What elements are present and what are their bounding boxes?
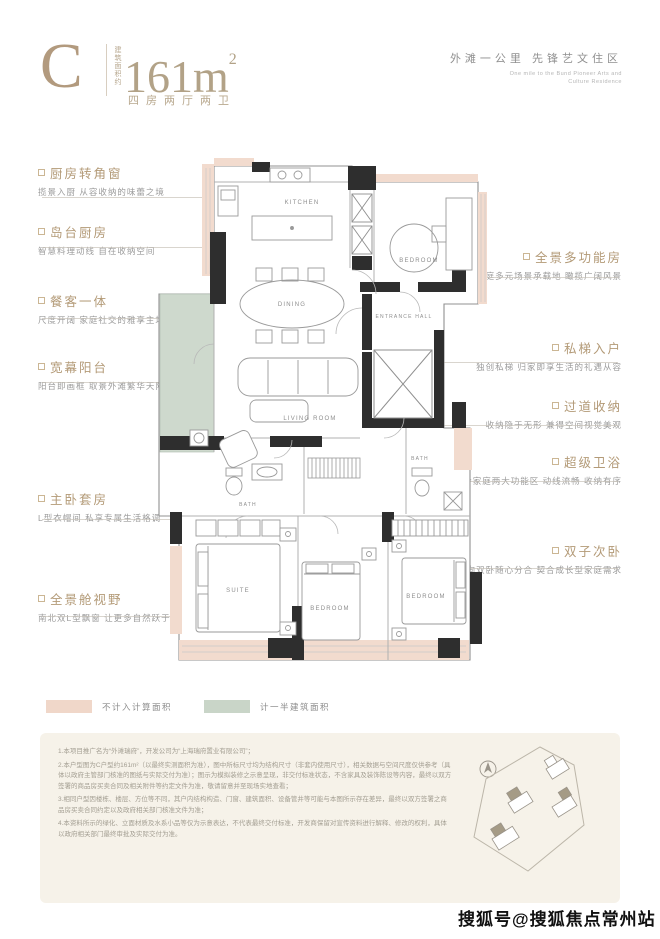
annotation-title: 厨房转角窗 (50, 167, 123, 181)
slogan-en-line1: One mile to the Bund Pioneer Arts and (510, 71, 622, 77)
annotation-title: 双子次卧 (564, 545, 622, 559)
legend-item-pink: 不计入计算面积 (46, 700, 172, 713)
annotation-title: 私梯入户 (564, 342, 622, 356)
room-label-bedroom-right: BEDROOM (406, 594, 445, 600)
annotation-title: 过道收纳 (564, 400, 622, 414)
slogan-en: One mile to the Bund Pioneer Arts and Cu… (322, 70, 622, 86)
slogan-cn: 外滩一公里 先锋艺文住区 (322, 50, 622, 66)
room-label-multi-room: BEDROOM (399, 258, 438, 264)
bullet-icon (38, 495, 45, 502)
half-counted-area-green (160, 294, 214, 452)
annotation-desc: L型衣帽间 私享专属生活格调 (38, 512, 161, 524)
site-minimap (462, 741, 612, 881)
annotation-title: 超级卫浴 (564, 456, 622, 470)
annotation-title: 岛台厨房 (50, 226, 108, 240)
floorplan-drawing: KITCHEN DINING LIVING ROOM BEDROOM ENTRA… (152, 148, 492, 683)
annotation-title: 主卧套房 (50, 493, 108, 507)
annotation-island-kitchen: 岛台厨房 智慧料理动线 自在收纳空间 (38, 222, 155, 257)
bullet-icon (38, 169, 45, 176)
watermark: 搜狐号@搜狐焦点常州站 (458, 905, 656, 930)
annotation-balcony: 宽幕阳台 阳台即画框 取景外滩繁华天际 (38, 357, 165, 392)
room-label-bath-second: BATH (411, 456, 429, 462)
header-divider (106, 44, 107, 96)
annotation-dining-living: 餐客一体 尺度开阔 家庭社交的雅享主场 (38, 291, 165, 326)
slogan-en-line2: Culture Residence (568, 79, 622, 85)
room-label-bedroom-mid: BEDROOM (310, 606, 349, 612)
bullet-icon (552, 547, 559, 554)
legend: 不计入计算面积 计一半建筑面积 (46, 700, 348, 713)
disclaimer-text: 1.本项目推广名为“外滩瑞府”，开发公司为“上海瑞府置业有限公司”； 2.本户型… (58, 747, 452, 843)
annotation-desc: 尺度开阔 家庭社交的雅享主场 (38, 314, 165, 326)
disclaimer-line: 1.本项目推广名为“外滩瑞府”，开发公司为“上海瑞府置业有限公司”； (58, 747, 452, 758)
storage-hatch (308, 458, 360, 478)
private-elevator (374, 350, 432, 418)
legend-swatch-pink (46, 700, 92, 713)
bullet-icon (552, 402, 559, 409)
annotation-title: 全景舱视野 (50, 593, 123, 607)
bullet-icon (552, 458, 559, 465)
room-label-kitchen: KITCHEN (285, 200, 320, 206)
annotation-title: 全景多功能房 (535, 251, 622, 265)
bullet-icon (523, 253, 530, 260)
legend-label: 计一半建筑面积 (260, 701, 330, 713)
balcony-fixtures (190, 430, 208, 446)
room-label-bath-main: BATH (239, 502, 257, 508)
legend-item-green: 计一半建筑面积 (204, 700, 330, 713)
area-note: 建筑面积约 (112, 46, 122, 86)
site-buildings (487, 752, 578, 850)
floorplan-page: { "header": { "unit_type": "C", "area_no… (0, 0, 660, 939)
room-label-living: LIVING ROOM (283, 416, 336, 422)
annotation-desc: 家庭多元场景承载地 瞰揽广阔风景 (476, 270, 622, 282)
bullet-icon (38, 228, 45, 235)
annotation-kitchen-corner-window: 厨房转角窗 揽景入厨 从容收纳的味蕾之境 (38, 163, 165, 198)
legend-label: 不计入计算面积 (102, 701, 172, 713)
annotation-title: 宽幕阳台 (50, 361, 108, 375)
unit-type-letter: C (40, 34, 83, 98)
unit-layout-text: 四房两厅两卫 (128, 92, 236, 108)
bullet-icon (38, 297, 45, 304)
room-label-entrance: ENTRANCE HALL (376, 314, 433, 320)
annotation-private-elevator: 私梯入户 独创私梯 归家即享生活的礼遇从容 (476, 338, 622, 373)
room-label-dining: DINING (278, 302, 306, 308)
annotation-title: 餐客一体 (50, 295, 108, 309)
disclaimer-box: 1.本项目推广名为“外滩瑞府”，开发公司为“上海瑞府置业有限公司”； 2.本户型… (40, 733, 620, 903)
legend-swatch-green (204, 700, 250, 713)
bullet-icon (38, 363, 45, 370)
area-sup: 2 (229, 51, 237, 68)
disclaimer-line: 3.相同户型因楼栋、楼层、方位等不同，其户内结构构造、门窗、建筑面积、设备管井等… (58, 795, 452, 816)
disclaimer-line: 4.本资料所示的绿化、立面材质及水系小品等仅为示意表达，不代表最终交付标准，开发… (58, 819, 452, 840)
disclaimer-line: 2.本户型图为C户型约161m²（以最终实测面积为准），图中所标尺寸均为结构尺寸… (58, 761, 452, 793)
room-label-suite: SUITE (226, 588, 250, 594)
bullet-icon (552, 344, 559, 351)
bullet-icon (38, 595, 45, 602)
